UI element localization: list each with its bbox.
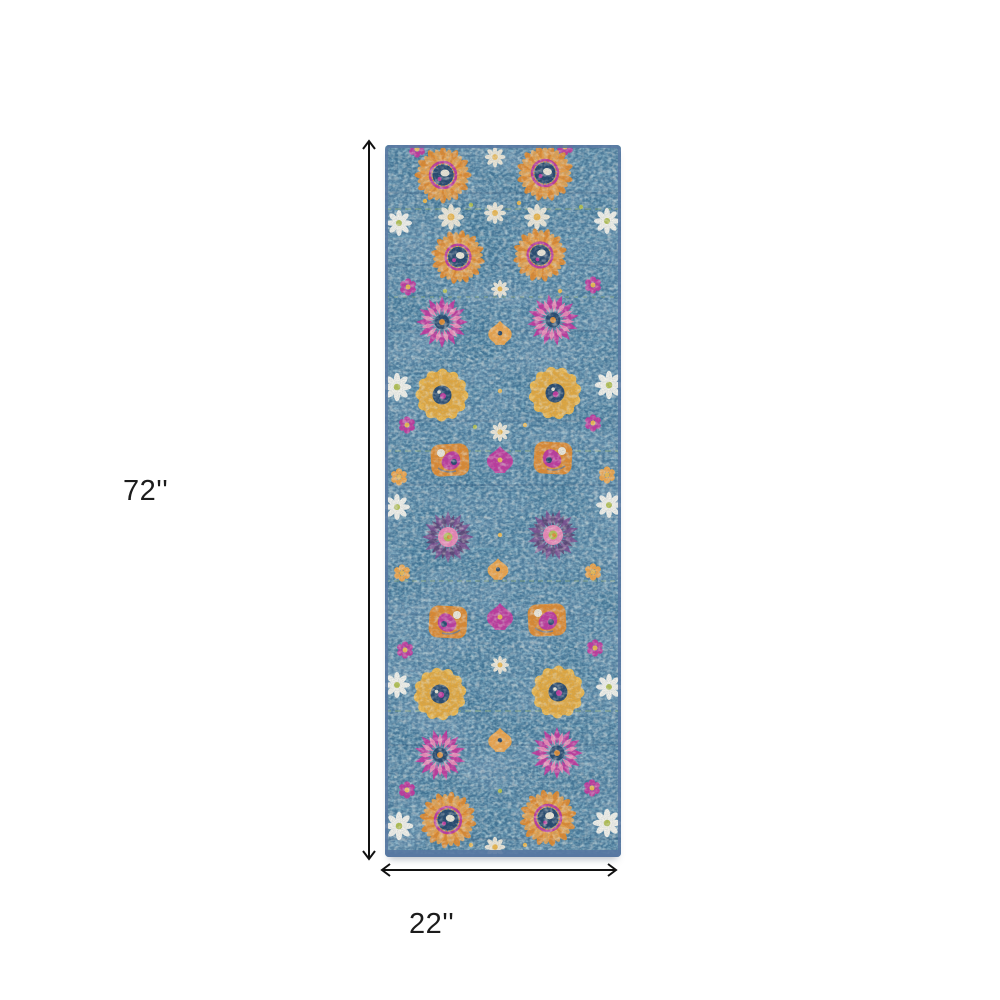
height-dimension-arrow-icon [361,137,377,863]
product-dimension-image: 72'' 22'' [0,0,1000,1000]
width-label: 22'' [409,910,454,939]
rug-artwork [385,145,621,857]
height-label: 72'' [123,477,168,506]
width-dimension-arrow-icon [377,860,621,880]
rug-image [385,145,621,857]
